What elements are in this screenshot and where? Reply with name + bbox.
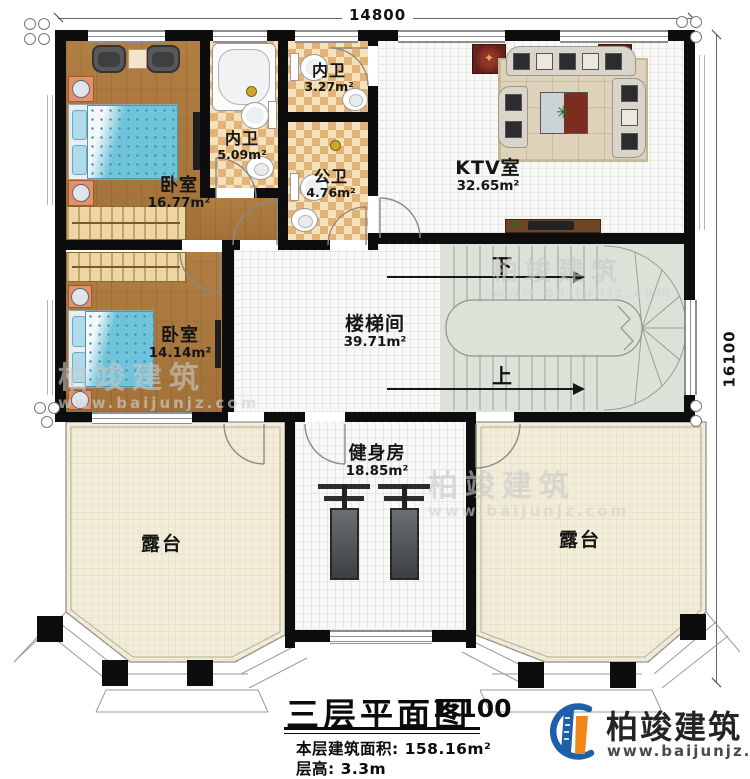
wall [285, 422, 295, 648]
wall [278, 30, 288, 250]
coffee-table: ✳ [540, 92, 588, 134]
wall [368, 86, 378, 196]
pillow [72, 145, 87, 175]
plant-icon: ✳ [510, 218, 520, 232]
column [102, 660, 128, 686]
sofa [612, 78, 646, 158]
wall [264, 412, 305, 422]
window-sill [47, 95, 53, 205]
stairs-up-arrow [387, 388, 573, 390]
workout-bench [312, 484, 378, 580]
bedroom-2-label: 卧室 14.14m² [138, 326, 222, 361]
brand-website: www.baijunjz.com [607, 742, 750, 760]
wall [514, 412, 695, 422]
window [330, 630, 432, 644]
window [295, 30, 358, 43]
stair-hall-label: 楼梯间 39.71m² [330, 314, 420, 350]
public-bath-label: 公卫 4.76m² [300, 168, 362, 200]
toilet [239, 100, 277, 130]
window [213, 30, 267, 43]
wall [368, 233, 695, 244]
lamp [72, 80, 90, 98]
cushion [536, 53, 553, 70]
floor-height-text: 层高: 3.3m [296, 757, 386, 779]
ensuite-bath-2-label: 内卫 3.27m² [298, 62, 360, 94]
side-table [128, 49, 147, 69]
double-bed [68, 104, 178, 180]
wall [285, 630, 330, 642]
watermark: 柏竣建筑 www.baijunjz.com [492, 258, 673, 301]
stair-hall-floor [378, 244, 440, 252]
cushion [505, 94, 522, 111]
bedroom-1-label: 卧室 16.77m² [137, 176, 221, 211]
wall [280, 240, 330, 250]
column [680, 614, 706, 640]
towel-knob [246, 86, 257, 97]
ktv-room-label: KTV室 32.65m² [448, 158, 528, 194]
towel-knob [330, 140, 341, 151]
sofa [498, 86, 528, 148]
wall [368, 240, 378, 250]
cushion [505, 121, 522, 138]
window [88, 30, 165, 43]
sofa [506, 46, 636, 76]
cushion [513, 53, 530, 70]
window-sill [699, 55, 705, 230]
floor-area-text: 本层建筑面积: 158.16m² [296, 737, 491, 759]
plan-scale: 1:100 [432, 694, 512, 723]
window [92, 412, 192, 424]
wardrobe-rod [72, 266, 181, 268]
nightstand [68, 76, 94, 102]
column [187, 660, 213, 686]
nightstand [68, 180, 94, 206]
drain-pipes [24, 18, 58, 52]
wall [466, 422, 476, 648]
toilet-tank [290, 173, 299, 201]
column [518, 662, 544, 688]
cushion [582, 53, 599, 70]
pillow [72, 316, 86, 347]
wall [55, 240, 182, 250]
pillow [72, 110, 87, 140]
title-underline [284, 727, 480, 730]
sink [291, 208, 318, 232]
drain-pipes [676, 16, 710, 50]
tv [528, 221, 574, 230]
wall [254, 188, 288, 198]
plant-icon: ✳ [556, 103, 570, 123]
wardrobe [66, 252, 186, 282]
cushion [621, 85, 638, 102]
wall [222, 240, 240, 250]
window [398, 30, 505, 43]
top-dimension-label: 14800 [342, 6, 413, 24]
stairs-up-label: 上 [492, 360, 512, 389]
wall [432, 630, 476, 642]
drain-pipes [690, 400, 710, 432]
cushion [621, 133, 638, 150]
cushion [621, 109, 638, 126]
ensuite-bath-1-label: 内卫 5.09m² [212, 130, 272, 162]
chair [146, 45, 180, 73]
gym-label: 健身房 18.85m² [330, 444, 424, 479]
wall [368, 30, 378, 46]
right-dimension-line [716, 35, 717, 683]
window-sill [47, 300, 53, 395]
lamp [72, 184, 90, 202]
title-underline [284, 733, 480, 734]
toilet-tank [268, 101, 277, 129]
terrace-left-label: 露台 [130, 534, 194, 555]
wardrobe-rod [72, 222, 181, 224]
wall [200, 30, 210, 188]
toilet-bowl [241, 102, 269, 129]
cushion [605, 53, 622, 70]
wall [288, 112, 368, 122]
terrace-right-label: 露台 [548, 530, 612, 551]
nightstand [68, 285, 92, 308]
watermark: 柏竣建筑 www.baijunjz.com [428, 470, 629, 520]
brand-logo-icon [543, 700, 601, 764]
window [560, 30, 668, 43]
column [37, 616, 63, 642]
tv [193, 112, 200, 170]
column [610, 662, 636, 688]
mattress [87, 105, 178, 179]
right-dimension-label: 16100 [721, 323, 739, 394]
wall [345, 412, 476, 422]
wall [192, 412, 228, 422]
chair [92, 45, 126, 73]
floor-plan-canvas: 14800 16100 [0, 0, 750, 779]
window [684, 300, 697, 395]
cushion [559, 53, 576, 70]
lamp [71, 288, 89, 306]
watermark: 柏竣建筑 www.baijunjz.com [58, 362, 259, 412]
